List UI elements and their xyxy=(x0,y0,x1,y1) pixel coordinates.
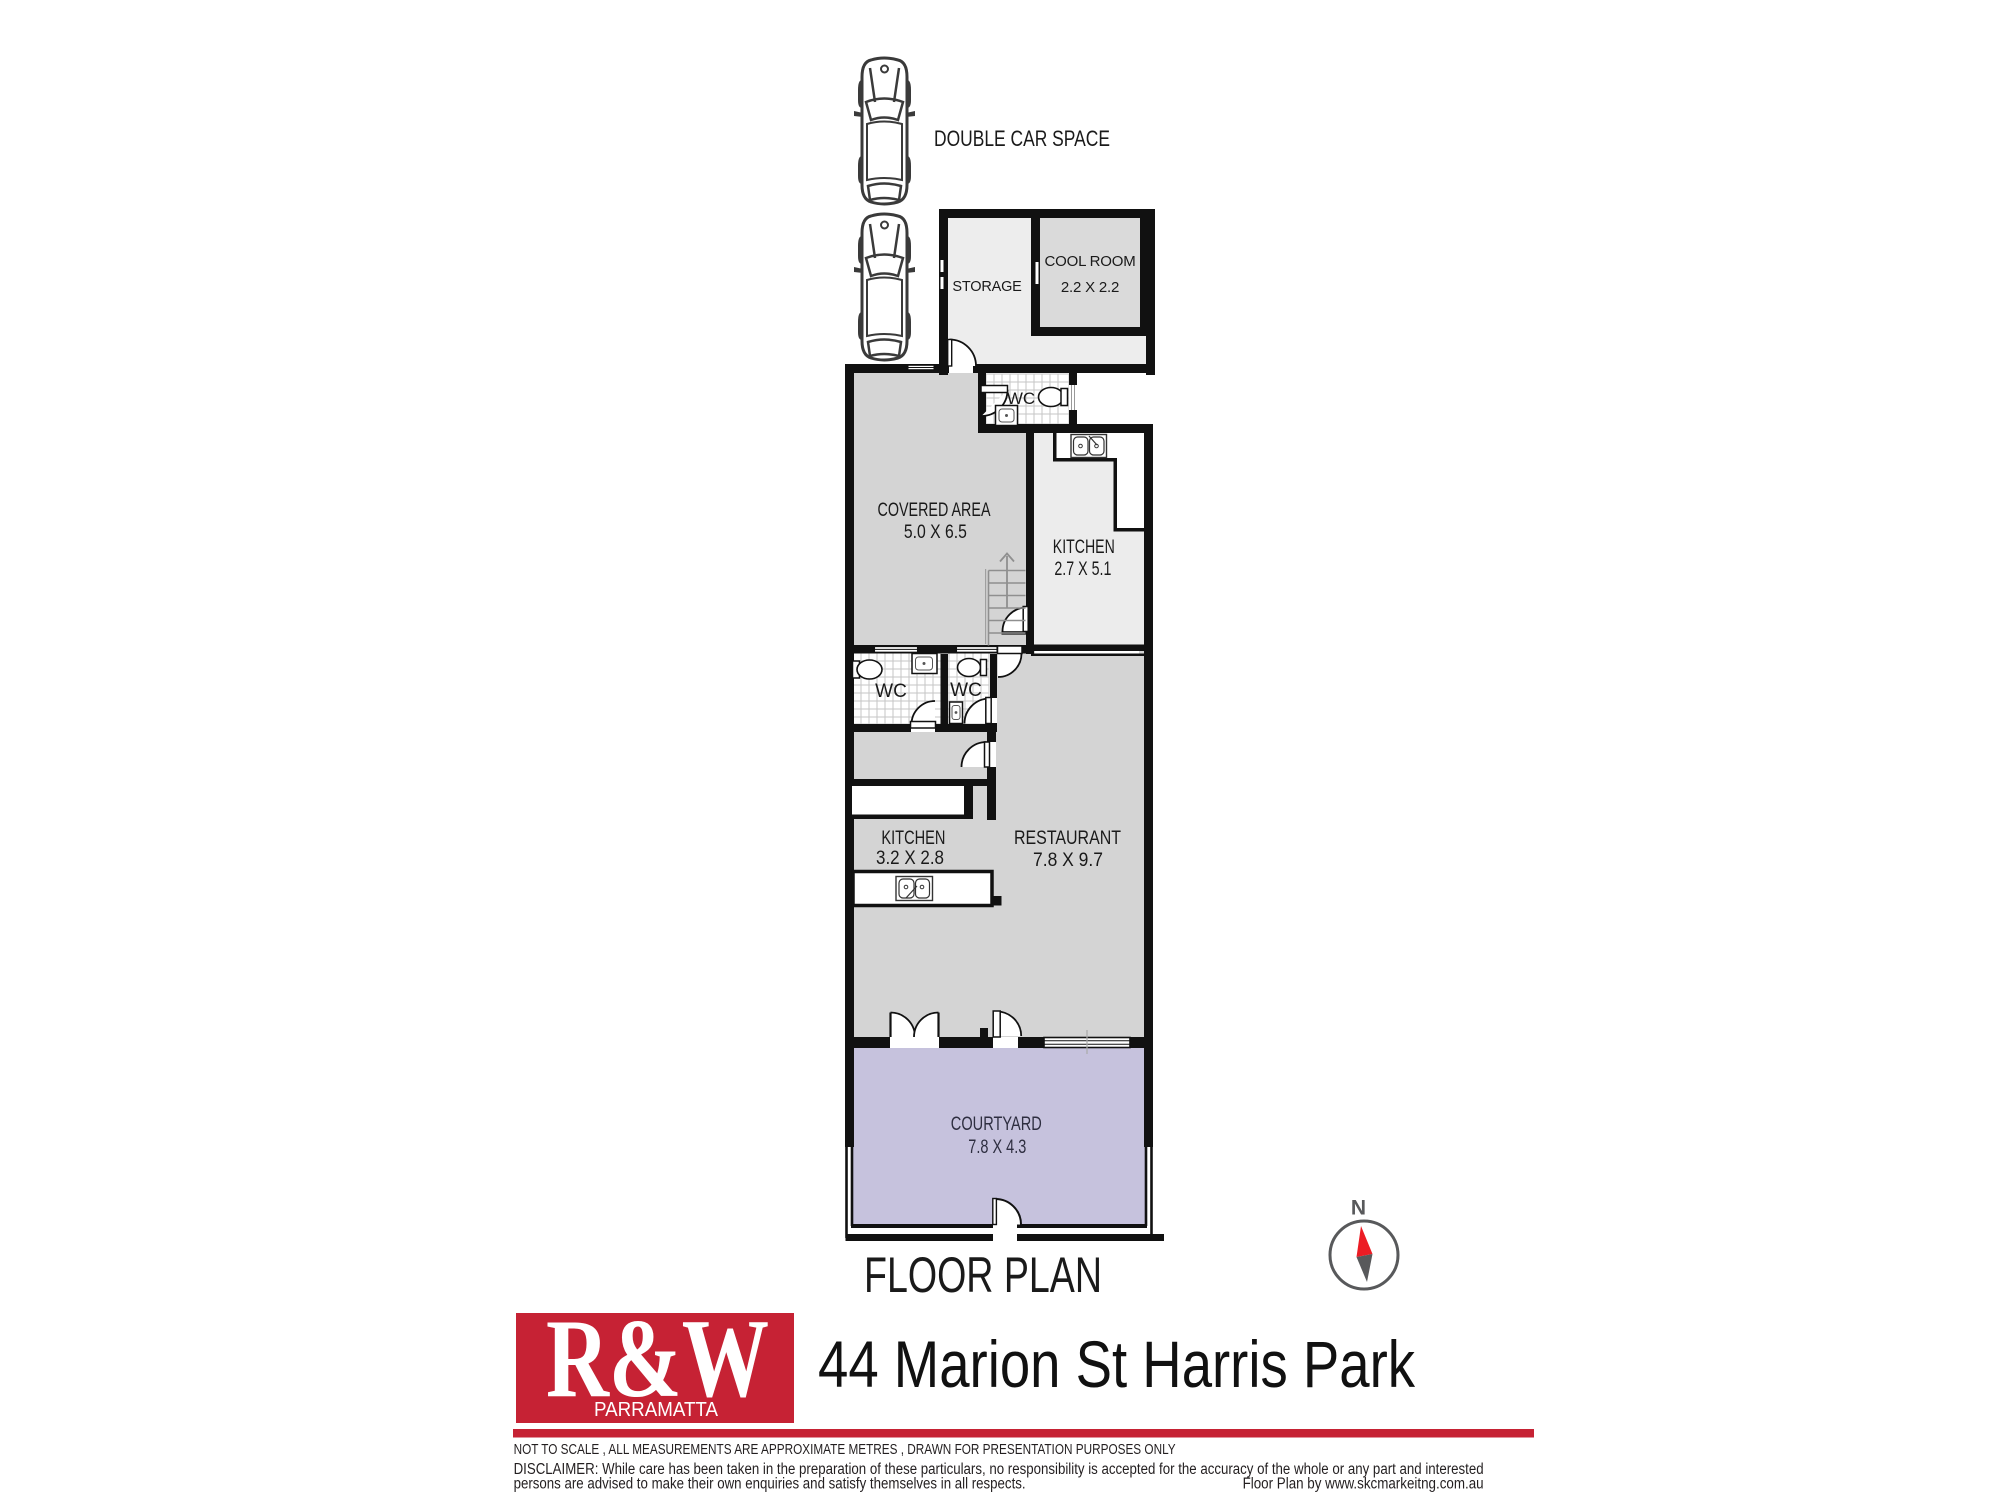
svg-text:WC: WC xyxy=(875,681,907,702)
svg-text:KITCHEN: KITCHEN xyxy=(881,827,945,849)
svg-text:WC: WC xyxy=(1007,389,1035,408)
svg-text:COURTYARD: COURTYARD xyxy=(951,1113,1042,1135)
svg-text:2.2 X 2.2: 2.2 X 2.2 xyxy=(1061,279,1119,296)
svg-text:Floor Plan by www.skcmarkeitng: Floor Plan by www.skcmarkeitng.com.au xyxy=(1243,1476,1484,1493)
svg-text:7.8 X 4.3: 7.8 X 4.3 xyxy=(968,1136,1026,1158)
svg-text:COOL ROOM: COOL ROOM xyxy=(1045,253,1136,270)
svg-text:COVERED AREA: COVERED AREA xyxy=(878,499,991,521)
svg-text:RESTAURANT: RESTAURANT xyxy=(1014,827,1121,849)
svg-text:2.7 X 5.1: 2.7 X 5.1 xyxy=(1054,558,1111,580)
svg-text:FLOOR PLAN: FLOOR PLAN xyxy=(864,1247,1102,1303)
svg-text:N: N xyxy=(1351,1197,1366,1220)
svg-text:44 Marion St Harris Park: 44 Marion St Harris Park xyxy=(818,1327,1416,1401)
svg-text:NOT TO SCALE , ALL MEASUREMENT: NOT TO SCALE , ALL MEASUREMENTS ARE APPR… xyxy=(514,1442,1176,1458)
svg-text:DOUBLE CAR SPACE: DOUBLE CAR SPACE xyxy=(934,126,1110,151)
svg-text:KITCHEN: KITCHEN xyxy=(1053,536,1115,558)
svg-text:3.2 X 2.8: 3.2 X 2.8 xyxy=(876,847,944,869)
svg-text:WC: WC xyxy=(950,680,982,701)
svg-text:PARRAMATTA: PARRAMATTA xyxy=(594,1399,719,1421)
svg-text:7.8 X 9.7: 7.8 X 9.7 xyxy=(1033,849,1103,871)
svg-text:STORAGE: STORAGE xyxy=(952,279,1022,295)
svg-text:persons are advised to make th: persons are advised to make their own en… xyxy=(514,1476,1026,1493)
svg-text:5.0 X 6.5: 5.0 X 6.5 xyxy=(904,521,967,543)
